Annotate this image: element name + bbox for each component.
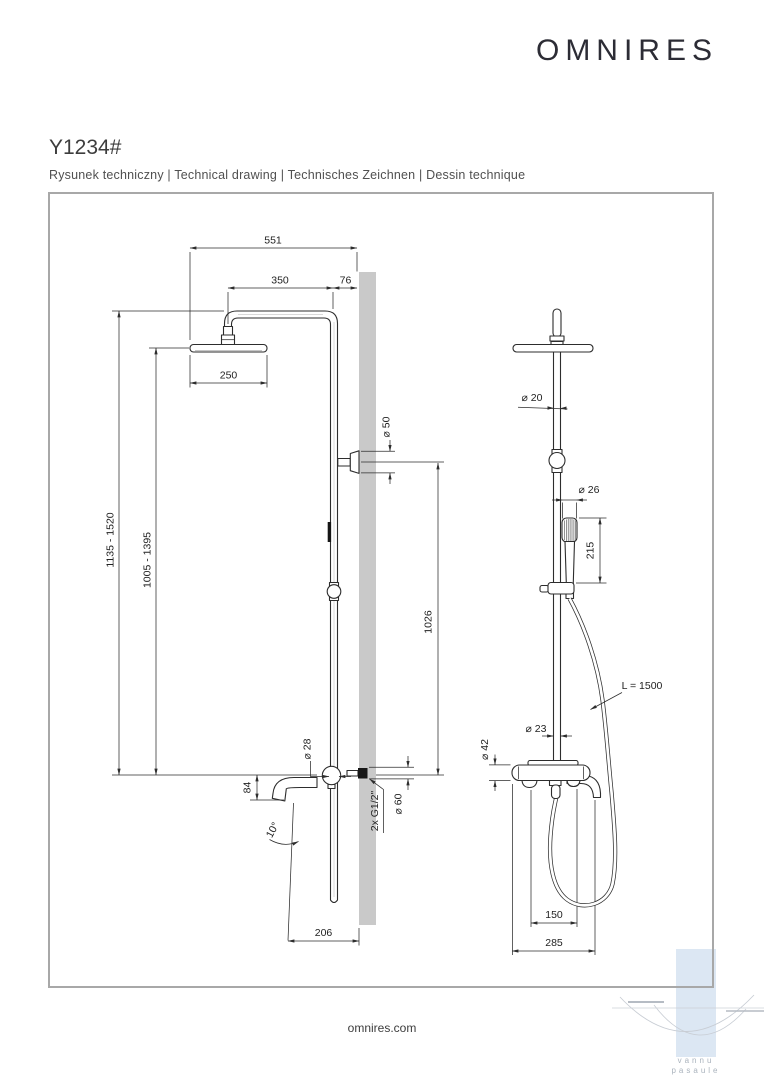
dim-551: 551 [264, 235, 282, 247]
valve-knob-side [322, 766, 340, 784]
dim-215: 215 [585, 542, 597, 560]
side-dimension-lines [112, 248, 444, 800]
front-dimension-lines [489, 407, 622, 951]
shower-head-front [513, 345, 593, 353]
holder-side [327, 585, 341, 599]
dim-1026: 1026 [423, 610, 435, 634]
watermark-line1: vannu [663, 1056, 729, 1066]
product-code: Y1234# [49, 136, 121, 160]
wall-bracket [350, 451, 359, 474]
dim-height-outer: 1135 - 1520 [105, 512, 117, 567]
watermark-text: vannu pasaule [663, 1056, 729, 1076]
valve-knob-right [567, 781, 580, 787]
shower-hose [550, 599, 615, 906]
dim-dia60: ⌀ 60 [393, 793, 405, 814]
handshower-side [328, 522, 331, 542]
dim-dia42: ⌀ 42 [479, 739, 491, 760]
dim-dia26: ⌀ 26 [579, 484, 600, 496]
wall-union [358, 768, 368, 779]
drawing-subtitle: Rysunek techniczny | Technical drawing |… [49, 168, 525, 182]
dim-angle-10: 10° [264, 820, 282, 840]
spout-side [272, 778, 317, 802]
dim-dia23: ⌀ 23 [526, 723, 547, 735]
ball-joint [549, 453, 565, 469]
dim-height-inner: 1005 - 1395 [142, 532, 154, 588]
side-view: 551 350 76 250 1135 - 1520 1005 - 1395 ⌀… [105, 235, 445, 946]
arm-fitting [224, 327, 233, 336]
dim-76: 76 [340, 275, 352, 287]
technical-drawing: 551 350 76 250 1135 - 1520 1005 - 1395 ⌀… [48, 192, 716, 990]
side-dimension-lines-2 [270, 440, 445, 946]
valve-body [512, 765, 590, 781]
dim-dia20: ⌀ 20 [522, 392, 543, 404]
website-url: omnires.com [0, 1021, 764, 1035]
handshower-holder [548, 583, 574, 595]
hose-elbow [552, 785, 561, 799]
dim-84: 84 [242, 782, 254, 794]
pipe-top-cap [553, 309, 561, 337]
brand-logo: OMNIRES [536, 34, 718, 68]
dim-150: 150 [545, 909, 563, 921]
dim-250: 250 [220, 370, 238, 382]
valve-knob-left [522, 781, 537, 788]
dim-hose-length: L = 1500 [622, 680, 663, 692]
front-view: ⌀ 20 ⌀ 26 215 L = 1500 ⌀ 23 ⌀ 42 150 285 [479, 309, 663, 955]
riser-pipe-side [225, 311, 338, 903]
dim-dia28: ⌀ 28 [302, 738, 314, 759]
dim-connection-g12: 2x G1/2" [369, 790, 381, 831]
riser-pipe-front [554, 352, 561, 765]
watermark-line2: pasaule [663, 1066, 729, 1076]
dim-350: 350 [271, 275, 289, 287]
dim-285: 285 [545, 937, 563, 949]
dim-dia50: ⌀ 50 [381, 416, 393, 437]
dim-206: 206 [315, 927, 333, 939]
